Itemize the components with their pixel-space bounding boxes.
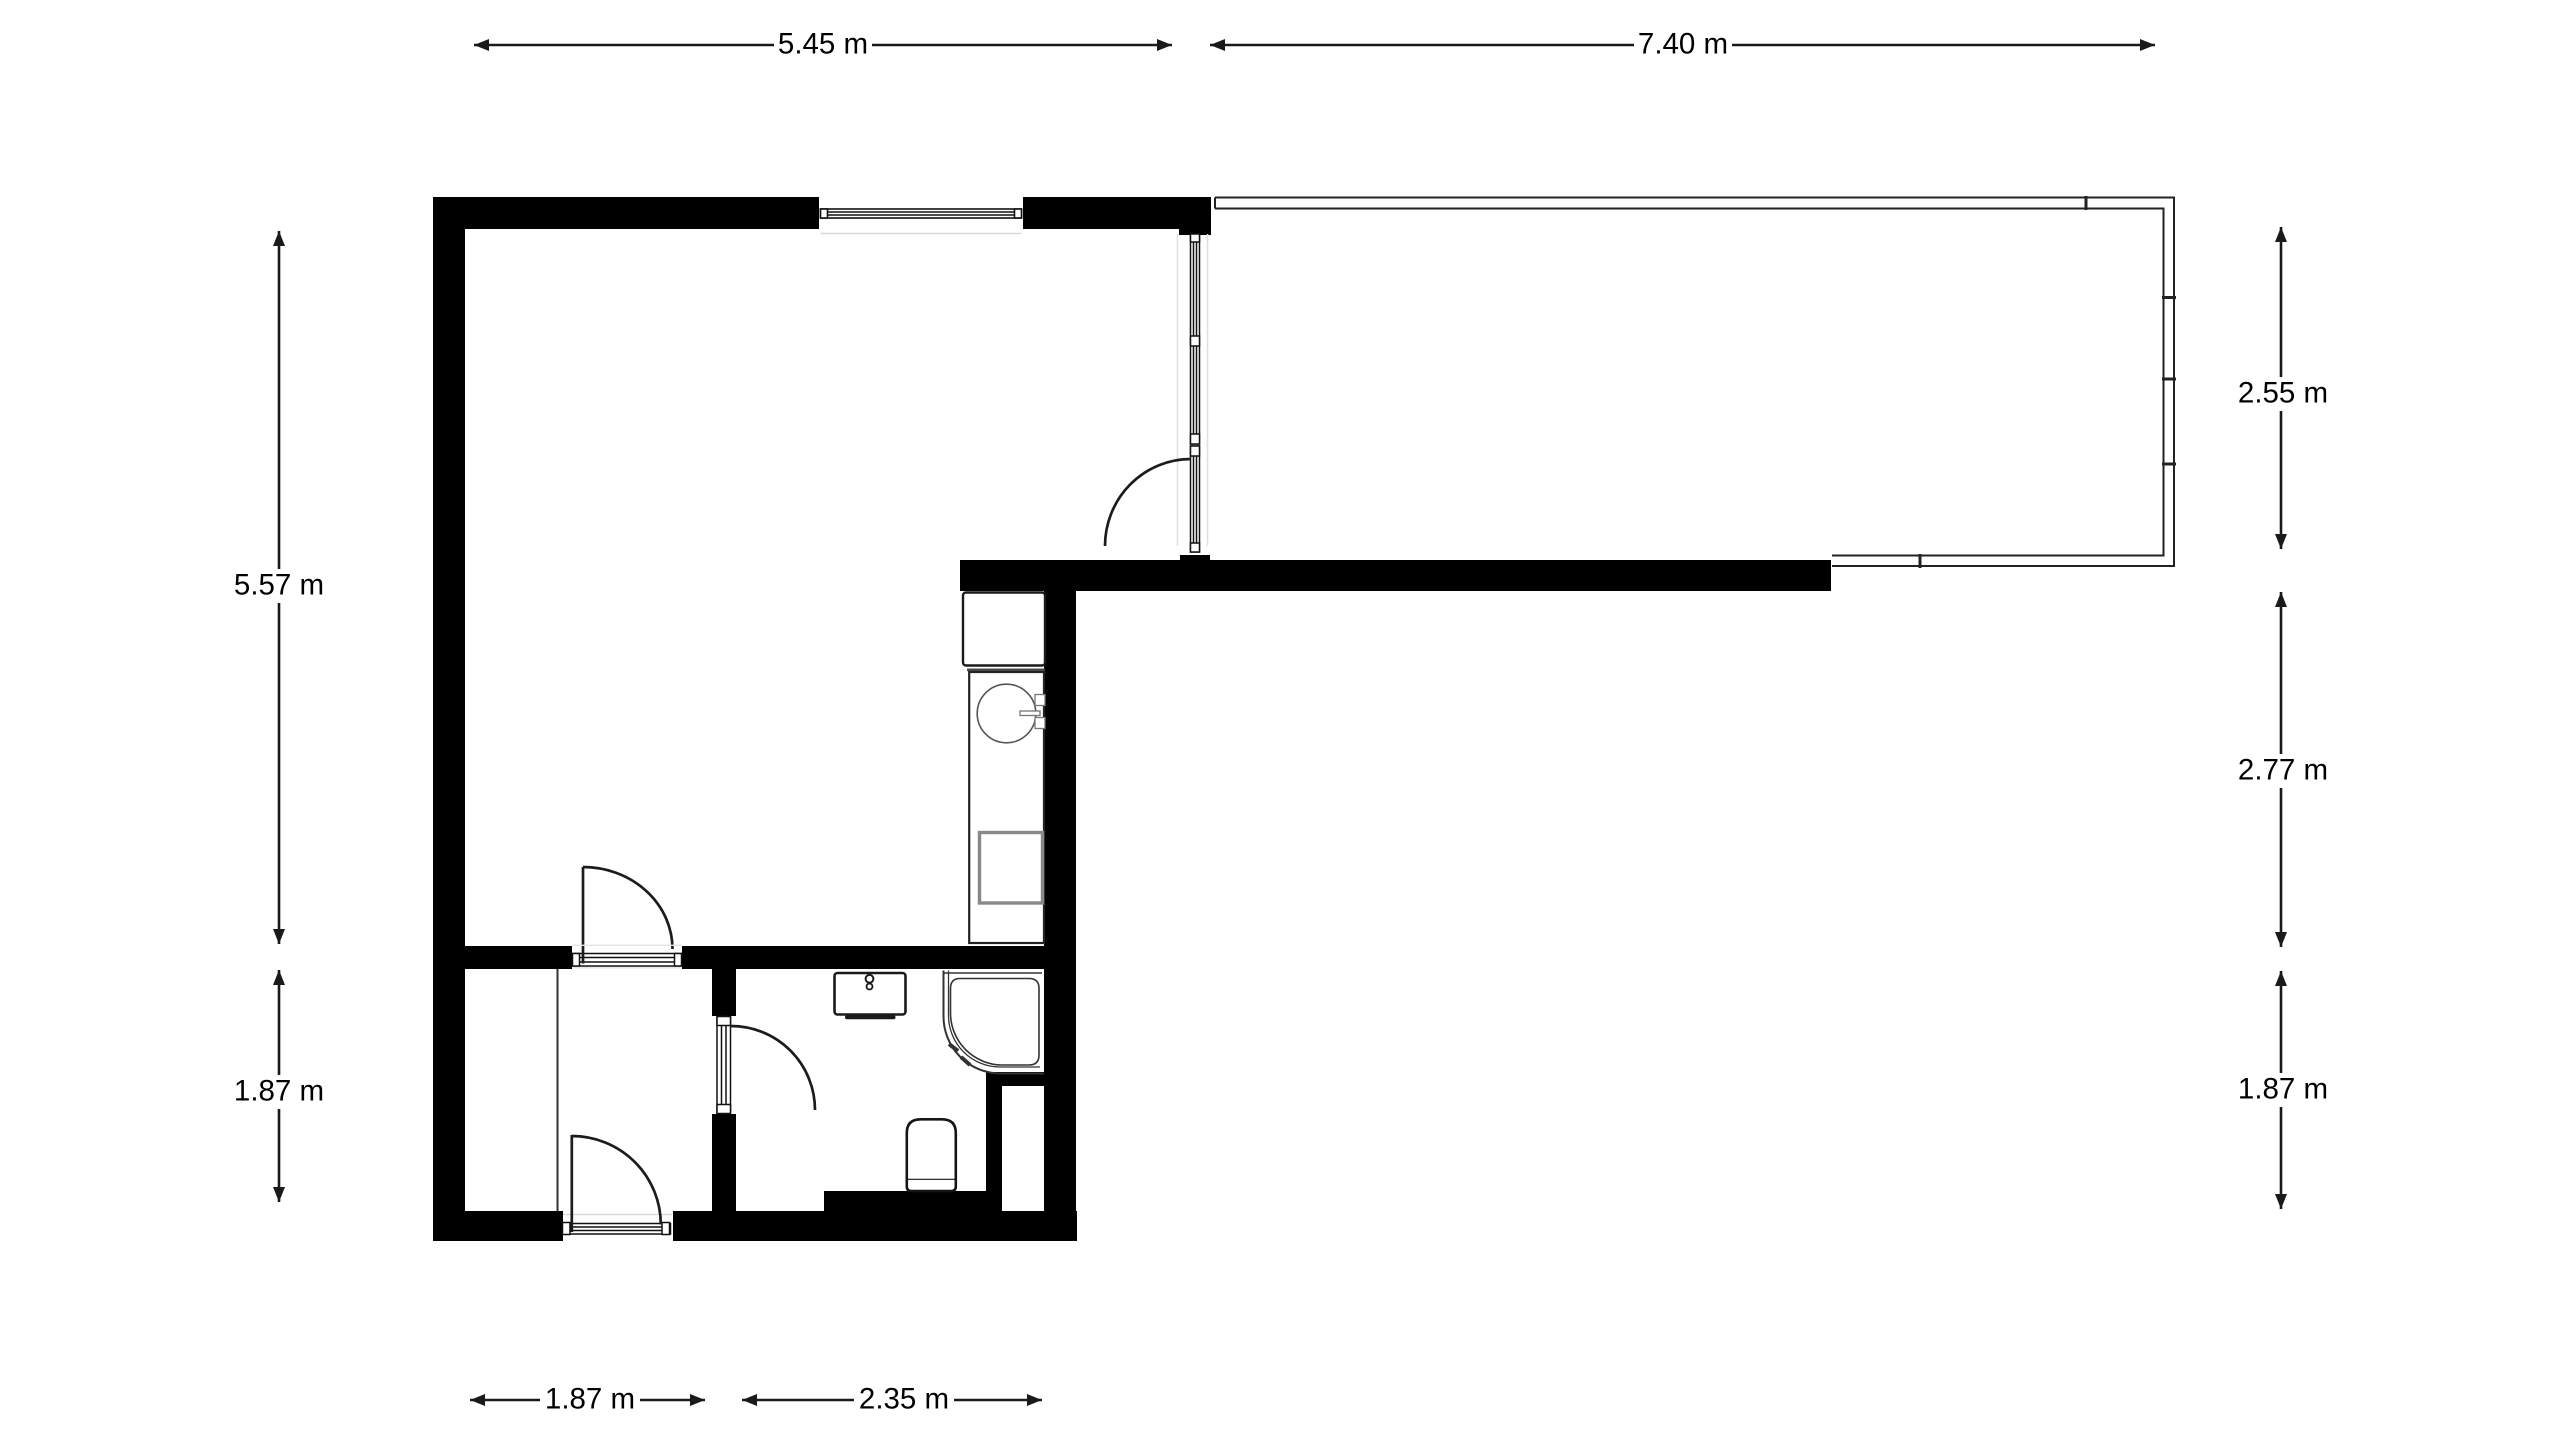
svg-text:2.55 m: 2.55 m <box>2238 377 2328 410</box>
svg-text:2.77 m: 2.77 m <box>2238 754 2328 787</box>
svg-text:7.40 m: 7.40 m <box>1638 28 1728 61</box>
svg-text:2.35 m: 2.35 m <box>859 1383 949 1416</box>
svg-text:5.45 m: 5.45 m <box>778 28 868 61</box>
svg-text:1.87 m: 1.87 m <box>2238 1073 2328 1106</box>
svg-text:1.87 m: 1.87 m <box>234 1075 324 1108</box>
svg-text:1.87 m: 1.87 m <box>545 1383 635 1416</box>
svg-text:5.57 m: 5.57 m <box>234 569 324 602</box>
